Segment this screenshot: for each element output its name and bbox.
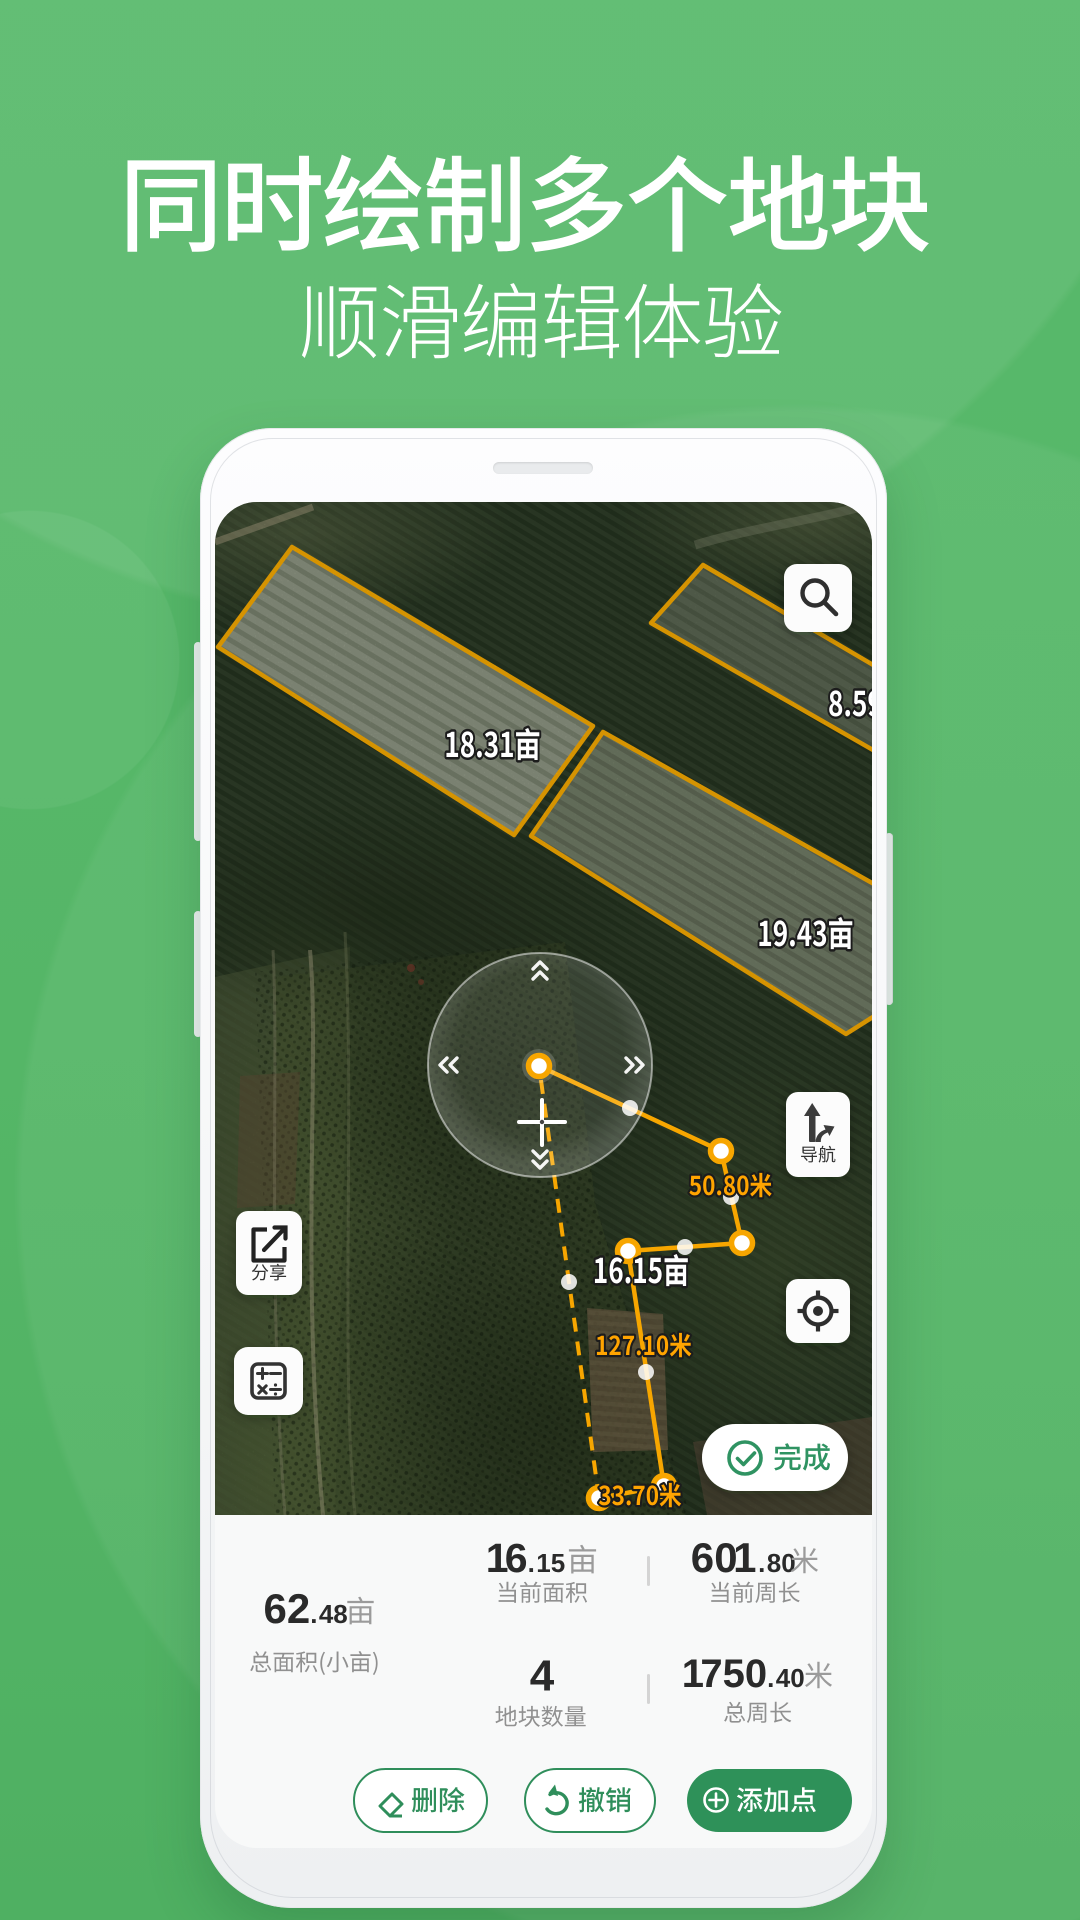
svg-text:7: 7 <box>700 1652 722 1696</box>
svg-text:.: . <box>310 1599 317 1629</box>
svg-text:5: 5 <box>723 1652 745 1696</box>
svg-text:.: . <box>758 1548 765 1578</box>
svg-text:6: 6 <box>505 1535 528 1581</box>
svg-text:2: 2 <box>287 1585 310 1632</box>
svg-text:.: . <box>767 1663 774 1693</box>
svg-text:8: 8 <box>333 1599 347 1629</box>
svg-text:6: 6 <box>691 1534 714 1581</box>
svg-text:4: 4 <box>319 1599 334 1629</box>
svg-text:4: 4 <box>530 1652 555 1701</box>
svg-text:0: 0 <box>790 1663 804 1693</box>
svg-text:5: 5 <box>551 1548 565 1578</box>
svg-text:0: 0 <box>745 1652 767 1696</box>
svg-text:1: 1 <box>733 1534 756 1581</box>
svg-text:4: 4 <box>776 1663 791 1693</box>
svg-text:8: 8 <box>767 1548 781 1578</box>
svg-text:.: . <box>528 1548 535 1578</box>
svg-text:0: 0 <box>781 1548 795 1578</box>
svg-text:6: 6 <box>264 1585 287 1632</box>
svg-text:1: 1 <box>536 1548 550 1578</box>
